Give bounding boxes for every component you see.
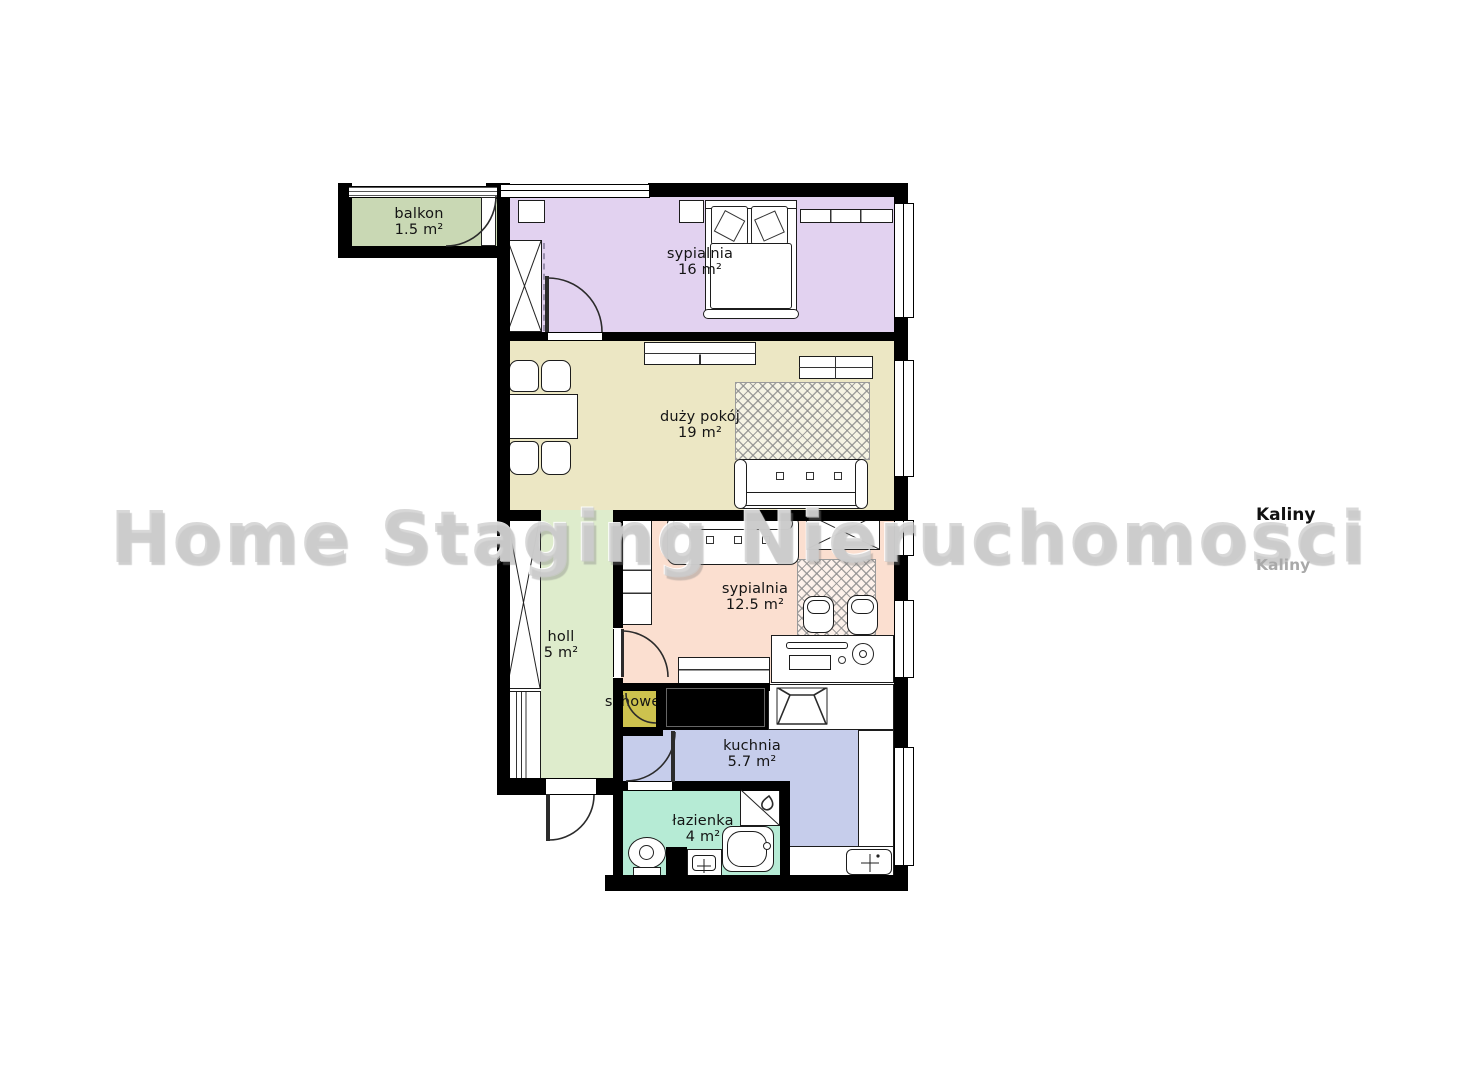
tv-cabinet-lines bbox=[799, 367, 873, 368]
bathtub-faucet bbox=[763, 842, 771, 850]
brand-label-secondary: Kaliny bbox=[1256, 556, 1310, 574]
pillow bbox=[711, 206, 748, 245]
pouf-top bbox=[851, 599, 874, 614]
window bbox=[500, 184, 650, 198]
room-label-kuchnia: kuchnia5.7 m² bbox=[692, 738, 812, 770]
door-swing-arc bbox=[617, 626, 673, 682]
wardrobe-x-icon bbox=[508, 241, 541, 331]
door-swing-arc bbox=[621, 727, 681, 787]
room-label-holl: holl5 m² bbox=[521, 629, 601, 661]
sofa-button bbox=[806, 472, 814, 480]
room-label-duzy-pokoj: duży pokój19 m² bbox=[630, 409, 770, 441]
chair bbox=[509, 360, 539, 392]
chair bbox=[541, 441, 571, 475]
wall bbox=[602, 332, 895, 341]
dining-table bbox=[508, 394, 578, 439]
pillow bbox=[751, 206, 788, 245]
room-label-balkon: balkon1.5 m² bbox=[359, 206, 479, 238]
sideboard-shelfline bbox=[644, 353, 756, 354]
wall bbox=[497, 183, 510, 795]
window bbox=[894, 360, 914, 477]
door-swing-arc bbox=[544, 790, 600, 846]
cabinet-small bbox=[518, 200, 545, 223]
wall-stub bbox=[666, 847, 687, 878]
door-swing-arc bbox=[623, 690, 659, 726]
wall bbox=[605, 875, 908, 891]
faucet-icon bbox=[858, 852, 882, 874]
hall-shelf bbox=[506, 691, 541, 787]
room-label-lazienka: łazienka4 m² bbox=[643, 813, 763, 845]
low-cabinet bbox=[678, 657, 770, 684]
wall bbox=[780, 781, 790, 880]
wardrobe bbox=[507, 240, 542, 332]
stove-icon bbox=[776, 686, 828, 726]
bed-footboard bbox=[703, 309, 799, 319]
window bbox=[894, 203, 914, 318]
window bbox=[894, 747, 914, 866]
toilet-inner bbox=[639, 845, 654, 860]
chair bbox=[509, 441, 539, 475]
desk-mouse bbox=[838, 656, 846, 664]
desk-lamp-dot bbox=[859, 650, 867, 658]
faucet-icon bbox=[696, 858, 712, 874]
nightstand bbox=[679, 200, 704, 223]
window bbox=[894, 600, 914, 678]
chair bbox=[541, 360, 571, 392]
watermark-text: Home Staging Nieruchomosci bbox=[110, 496, 1368, 579]
sofa-button bbox=[776, 472, 784, 480]
wall-shelf bbox=[800, 209, 893, 223]
door-swing-arc bbox=[543, 273, 607, 337]
desk-monitor bbox=[786, 642, 848, 649]
sofa-button bbox=[834, 472, 842, 480]
room-label-sypialnia-12: sypialnia12.5 m² bbox=[685, 581, 825, 613]
floor-plan: balkon1.5 m² sypialnia16 m² duży pokój19… bbox=[0, 0, 1475, 1080]
duct-shaft bbox=[663, 685, 768, 730]
wall bbox=[648, 183, 908, 197]
desk-keyboard bbox=[789, 655, 831, 670]
brand-label-primary: Kaliny bbox=[1256, 505, 1315, 525]
room-label-sypialnia-16: sypialnia16 m² bbox=[640, 246, 760, 278]
tv-cabinet-divider bbox=[835, 356, 836, 379]
wall bbox=[497, 332, 548, 341]
